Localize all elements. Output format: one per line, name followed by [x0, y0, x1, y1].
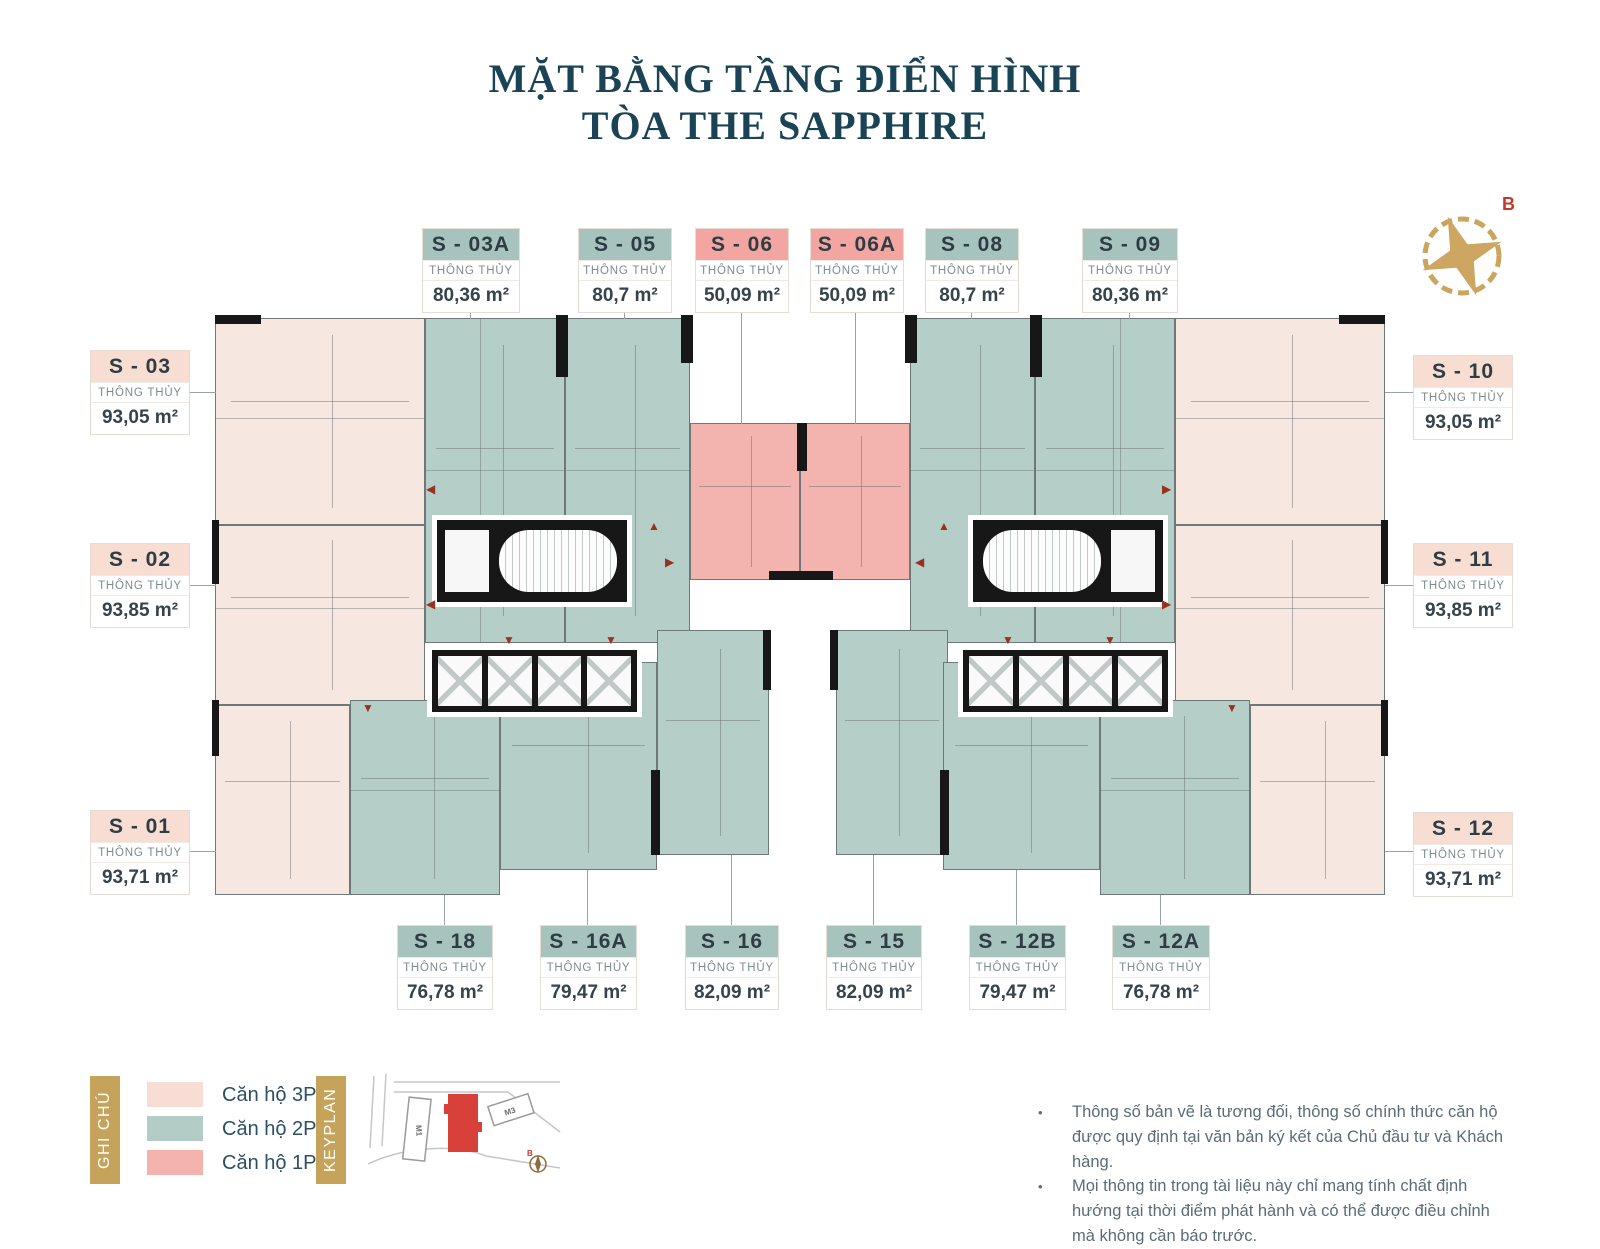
disclaimer-notes: • Thông số bản vẽ là tương đối, thông số…	[1038, 1100, 1510, 1249]
keyplan-map: M1 M3 B	[360, 1070, 565, 1182]
unit-area: 50,09 m²	[811, 281, 903, 312]
area-type-label: THÔNG THỦY	[423, 260, 519, 281]
note-item: • Mọi thông tin trong tài liệu này chỉ m…	[1038, 1174, 1510, 1248]
entrance-arrow: ▼	[1226, 702, 1238, 714]
keyplan-building-m1: M1	[414, 1125, 424, 1137]
room-divider	[350, 790, 500, 791]
unit-area: 80,7 m²	[579, 281, 671, 312]
elevator-car	[1118, 656, 1162, 706]
bullet-icon: •	[1038, 1100, 1072, 1174]
note-text-1: Thông số bản vẽ là tương đối, thông số c…	[1072, 1100, 1510, 1174]
unit-id: S - 01	[91, 811, 189, 842]
svg-text:B: B	[527, 1149, 533, 1158]
unit-area: 93,05 m²	[1414, 408, 1512, 439]
entrance-arrow: ▼	[1002, 634, 1014, 646]
legend-label-3pn: Căn hộ 3PN	[222, 1084, 331, 1107]
wall-segment	[769, 571, 833, 580]
elevator-bank-left	[432, 650, 637, 712]
unit-area: 80,7 m²	[926, 281, 1018, 312]
note-text-2: Mọi thông tin trong tài liệu này chỉ man…	[1072, 1174, 1510, 1248]
unit-region-s-15	[836, 630, 948, 855]
wall-segment	[681, 315, 693, 363]
entrance-arrow: ▲	[938, 520, 950, 532]
area-type-label: THÔNG THỦY	[91, 382, 189, 403]
unit-id: S - 18	[398, 926, 492, 957]
label-connector	[1016, 870, 1017, 925]
area-type-label: THÔNG THỦY	[91, 575, 189, 596]
label-connector	[587, 870, 588, 925]
note-item: • Thông số bản vẽ là tương đối, thông số…	[1038, 1100, 1510, 1174]
wall-segment	[556, 315, 568, 377]
label-connector	[188, 851, 216, 852]
elevator-car	[488, 656, 532, 706]
unit-id: S - 05	[579, 229, 671, 260]
legend-swatch-1pn	[147, 1150, 203, 1175]
area-type-label: THÔNG THỦY	[1083, 260, 1177, 281]
label-connector	[731, 855, 732, 925]
page-title-line2: TÒA THE SAPPHIRE	[0, 103, 1570, 150]
staircase	[499, 530, 617, 592]
wall-segment	[797, 423, 807, 471]
area-type-label: THÔNG THỦY	[926, 260, 1018, 281]
unit-label-s-12: S - 12 THÔNG THỦY 93,71 m²	[1413, 812, 1513, 897]
wall-segment	[830, 630, 838, 690]
unit-label-s-16a: S - 16A THÔNG THỦY 79,47 m²	[540, 925, 637, 1010]
wall-segment	[1339, 315, 1385, 324]
unit-area: 80,36 m²	[1083, 281, 1177, 312]
entrance-arrow: ▶	[665, 556, 674, 568]
elevator-car	[538, 656, 582, 706]
bullet-icon: •	[1038, 1174, 1072, 1248]
unit-label-s-03: S - 03 THÔNG THỦY 93,05 m²	[90, 350, 190, 435]
wall-segment	[1381, 520, 1388, 584]
stair-core-left	[437, 520, 627, 602]
label-connector	[1385, 851, 1413, 852]
entrance-arrow: ▲	[648, 520, 660, 532]
area-type-label: THÔNG THỦY	[398, 957, 492, 978]
elevator-shaft	[1111, 530, 1155, 592]
area-type-label: THÔNG THỦY	[91, 842, 189, 863]
room-divider	[1100, 790, 1250, 791]
area-type-label: THÔNG THỦY	[1113, 957, 1209, 978]
entrance-arrow: ▶	[1162, 483, 1171, 495]
unit-label-s-11: S - 11 THÔNG THỦY 93,85 m²	[1413, 543, 1513, 628]
room-divider	[215, 608, 425, 609]
unit-label-s-02: S - 02 THÔNG THỦY 93,85 m²	[90, 543, 190, 628]
unit-id: S - 16	[686, 926, 778, 957]
area-type-label: THÔNG THỦY	[827, 957, 921, 978]
legend-title: GHI CHÚ	[96, 1091, 114, 1169]
unit-region-s-03	[215, 318, 425, 525]
unit-label-s-16: S - 16 THÔNG THỦY 82,09 m²	[685, 925, 779, 1010]
area-type-label: THÔNG THỦY	[579, 260, 671, 281]
unit-region-s-12	[1250, 705, 1385, 895]
keyplan-compass-icon: B	[527, 1149, 546, 1173]
compass-north-label: B	[1502, 194, 1515, 214]
unit-area: 79,47 m²	[541, 978, 636, 1009]
room-divider	[1175, 418, 1385, 419]
room-divider	[1175, 608, 1385, 609]
legend-title-bar: GHI CHÚ	[90, 1076, 120, 1184]
unit-area: 50,09 m²	[696, 281, 788, 312]
label-connector	[1385, 392, 1413, 393]
unit-label-s-15: S - 15 THÔNG THỦY 82,09 m²	[826, 925, 922, 1010]
unit-region-s-10	[1175, 318, 1385, 525]
room-divider	[425, 470, 690, 471]
area-type-label: THÔNG THỦY	[541, 957, 636, 978]
wall-segment	[212, 520, 219, 584]
entrance-arrow: ▼	[1104, 634, 1116, 646]
unit-label-s-06a: S - 06A THÔNG THỦY 50,09 m²	[810, 228, 904, 313]
label-connector	[188, 392, 216, 393]
area-type-label: THÔNG THỦY	[686, 957, 778, 978]
elevator-car	[438, 656, 482, 706]
label-connector	[873, 855, 874, 925]
unit-region-s-12a	[1100, 700, 1250, 895]
wall-segment	[215, 315, 261, 324]
compass-rose-icon: B	[1400, 190, 1524, 316]
wall-segment	[651, 770, 660, 855]
keyplan-title-bar: KEYPLAN	[316, 1076, 346, 1184]
unit-area: 76,78 m²	[1113, 978, 1209, 1009]
unit-id: S - 11	[1414, 544, 1512, 575]
label-connector	[741, 307, 742, 424]
legend-swatch-3pn	[147, 1082, 203, 1107]
wall-segment	[940, 770, 949, 855]
entrance-arrow: ▼	[362, 702, 374, 714]
area-type-label: THÔNG THỦY	[811, 260, 903, 281]
unit-region-s-02	[215, 525, 425, 705]
unit-area: 80,36 m²	[423, 281, 519, 312]
label-connector	[444, 895, 445, 925]
stair-core-right	[973, 520, 1163, 602]
unit-id: S - 10	[1414, 356, 1512, 387]
unit-area: 93,71 m²	[1414, 865, 1512, 896]
unit-region-s-06a	[800, 423, 910, 580]
unit-id: S - 09	[1083, 229, 1177, 260]
page-title: MẶT BẰNG TẦNG ĐIỂN HÌNH TÒA THE SAPPHIRE	[0, 56, 1570, 150]
wall-segment	[1381, 700, 1388, 756]
unit-region-s-06	[690, 423, 800, 580]
elevator-bank-right	[963, 650, 1168, 712]
entrance-arrow: ▼	[605, 634, 617, 646]
area-type-label: THÔNG THỦY	[1414, 844, 1512, 865]
unit-id: S - 12A	[1113, 926, 1209, 957]
unit-id: S - 16A	[541, 926, 636, 957]
area-type-label: THÔNG THỦY	[970, 957, 1065, 978]
unit-id: S - 08	[926, 229, 1018, 260]
unit-label-s-03a: S - 03A THÔNG THỦY 80,36 m²	[422, 228, 520, 313]
unit-id: S - 06A	[811, 229, 903, 260]
unit-area: 79,47 m²	[970, 978, 1065, 1009]
unit-id: S - 12	[1414, 813, 1512, 844]
unit-area: 93,71 m²	[91, 863, 189, 894]
label-connector	[1385, 585, 1413, 586]
legend-label-2pn: Căn hộ 2PN	[222, 1118, 331, 1141]
label-connector	[1160, 895, 1161, 925]
entrance-arrow: ▶	[1162, 598, 1171, 610]
unit-id: S - 12B	[970, 926, 1065, 957]
page-title-line1: MẶT BẰNG TẦNG ĐIỂN HÌNH	[0, 56, 1570, 103]
unit-label-s-12a: S - 12A THÔNG THỦY 76,78 m²	[1112, 925, 1210, 1010]
elevator-car	[587, 656, 631, 706]
unit-area: 82,09 m²	[827, 978, 921, 1009]
unit-label-s-10: S - 10 THÔNG THỦY 93,05 m²	[1413, 355, 1513, 440]
legend-swatch-2pn	[147, 1116, 203, 1141]
unit-label-s-12b: S - 12B THÔNG THỦY 79,47 m²	[969, 925, 1066, 1010]
entrance-arrow: ▼	[503, 634, 515, 646]
label-connector	[855, 307, 856, 424]
unit-id: S - 02	[91, 544, 189, 575]
unit-area: 76,78 m²	[398, 978, 492, 1009]
unit-label-s-05: S - 05 THÔNG THỦY 80,7 m²	[578, 228, 672, 313]
unit-area: 93,05 m²	[91, 403, 189, 434]
area-type-label: THÔNG THỦY	[1414, 387, 1512, 408]
unit-id: S - 03A	[423, 229, 519, 260]
keyplan-building-sapphire	[448, 1094, 478, 1152]
room-divider	[910, 470, 1175, 471]
elevator-car	[1019, 656, 1063, 706]
elevator-car	[1069, 656, 1113, 706]
unit-id: S - 06	[696, 229, 788, 260]
unit-label-s-06: S - 06 THÔNG THỦY 50,09 m²	[695, 228, 789, 313]
staircase	[983, 530, 1101, 592]
unit-region-s-11	[1175, 525, 1385, 705]
unit-region-s-16	[657, 630, 769, 855]
entrance-arrow: ◀	[426, 598, 435, 610]
unit-area: 93,85 m²	[1414, 596, 1512, 627]
keyplan-title: KEYPLAN	[322, 1088, 340, 1172]
legend-label-1pn: Căn hộ 1PN	[222, 1152, 331, 1175]
unit-region-s-01	[215, 705, 350, 895]
unit-label-s-09: S - 09 THÔNG THỦY 80,36 m²	[1082, 228, 1178, 313]
wall-segment	[763, 630, 771, 690]
unit-label-s-18: S - 18 THÔNG THỦY 76,78 m²	[397, 925, 493, 1010]
label-connector	[188, 585, 216, 586]
entrance-arrow: ◀	[426, 483, 435, 495]
entrance-arrow: ◀	[915, 556, 924, 568]
unit-area: 82,09 m²	[686, 978, 778, 1009]
room-divider	[215, 418, 425, 419]
unit-label-s-01: S - 01 THÔNG THỦY 93,71 m²	[90, 810, 190, 895]
area-type-label: THÔNG THỦY	[1414, 575, 1512, 596]
area-type-label: THÔNG THỦY	[696, 260, 788, 281]
wall-segment	[1030, 315, 1042, 377]
unit-id: S - 03	[91, 351, 189, 382]
unit-area: 93,85 m²	[91, 596, 189, 627]
wall-segment	[905, 315, 917, 363]
unit-label-s-08: S - 08 THÔNG THỦY 80,7 m²	[925, 228, 1019, 313]
unit-region-s-18	[350, 700, 500, 895]
unit-id: S - 15	[827, 926, 921, 957]
elevator-shaft	[445, 530, 489, 592]
wall-segment	[212, 700, 219, 756]
elevator-car	[969, 656, 1013, 706]
